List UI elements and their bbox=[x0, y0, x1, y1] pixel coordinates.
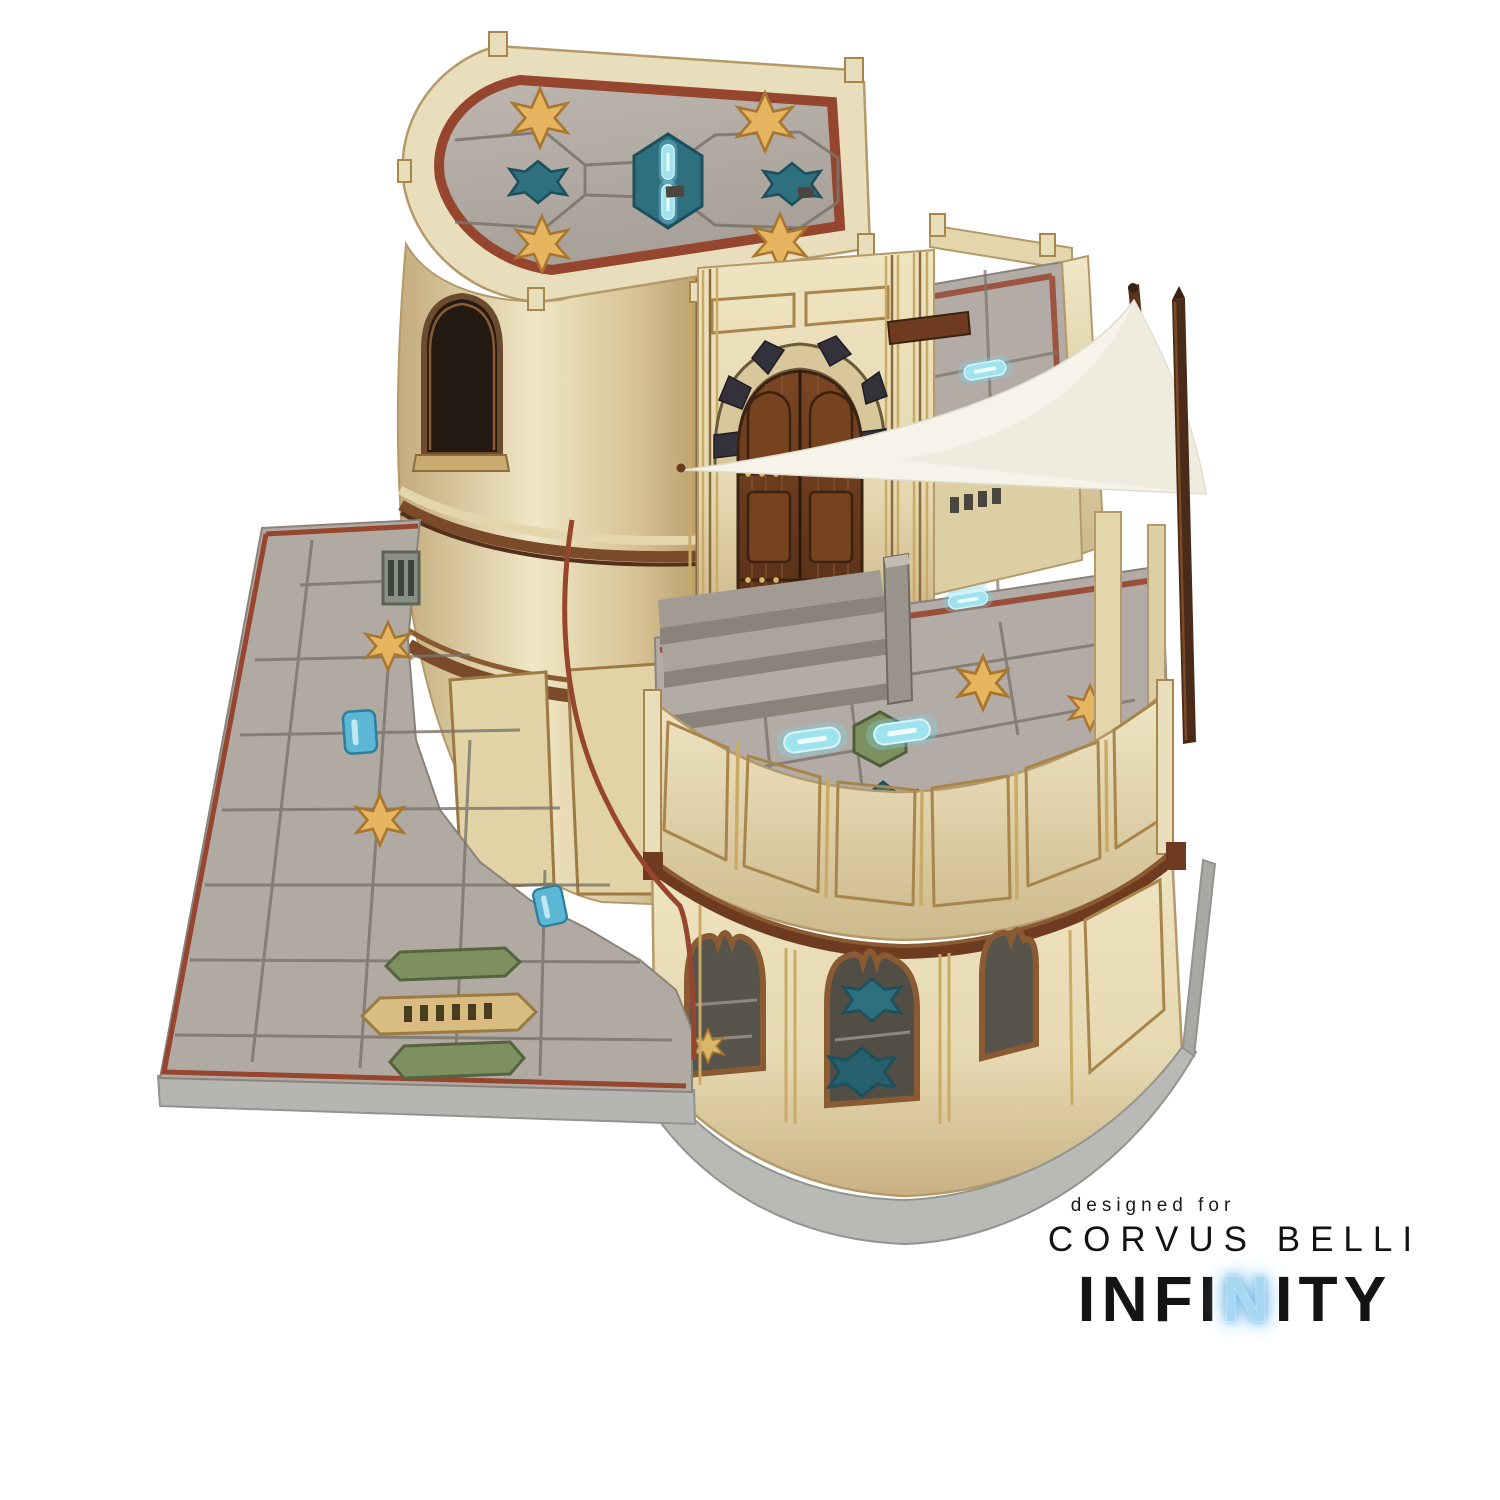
wing-parapet-post bbox=[1040, 234, 1055, 256]
ground-vent-plate bbox=[362, 994, 536, 1034]
awning-pole bbox=[1172, 286, 1196, 744]
designed-for-text: designed for bbox=[1020, 1196, 1286, 1215]
ground-grate-slits bbox=[388, 560, 414, 596]
ground-green-plate bbox=[390, 1042, 524, 1078]
roof-latch bbox=[666, 185, 685, 197]
wing-parapet-post bbox=[930, 214, 945, 236]
logo-accent-letter: N bbox=[1223, 1263, 1275, 1335]
rotunda-rail-bracket bbox=[1166, 842, 1186, 870]
ground-green-plate bbox=[386, 948, 520, 980]
tower-window-sill bbox=[413, 455, 509, 471]
ground-lantern-light bbox=[343, 710, 378, 754]
roof-latch bbox=[798, 186, 815, 198]
logo-prefix: INFI bbox=[1078, 1263, 1223, 1335]
awning-peak-tip bbox=[1128, 283, 1138, 293]
balcony-end-post bbox=[1157, 680, 1173, 854]
branding-block: designed for CORVUS BELLI INFINITY bbox=[1020, 1196, 1450, 1331]
ground-lantern-light bbox=[532, 885, 568, 928]
stone-base-right-edge bbox=[1183, 860, 1215, 1056]
infinity-logo: INFINITY bbox=[1020, 1267, 1450, 1331]
awning-left-pin bbox=[677, 464, 686, 473]
rotunda-arch-right bbox=[982, 930, 1036, 1058]
roof-light bbox=[659, 140, 678, 185]
product-photo-stage: designed for CORVUS BELLI INFINITY bbox=[0, 0, 1500, 1500]
publisher-name: CORVUS BELLI bbox=[1020, 1222, 1450, 1257]
logo-suffix: ITY bbox=[1275, 1263, 1393, 1335]
step-side-wall bbox=[884, 554, 912, 704]
awning-pole-tip bbox=[1172, 286, 1185, 300]
balcony-end-post bbox=[644, 690, 661, 866]
